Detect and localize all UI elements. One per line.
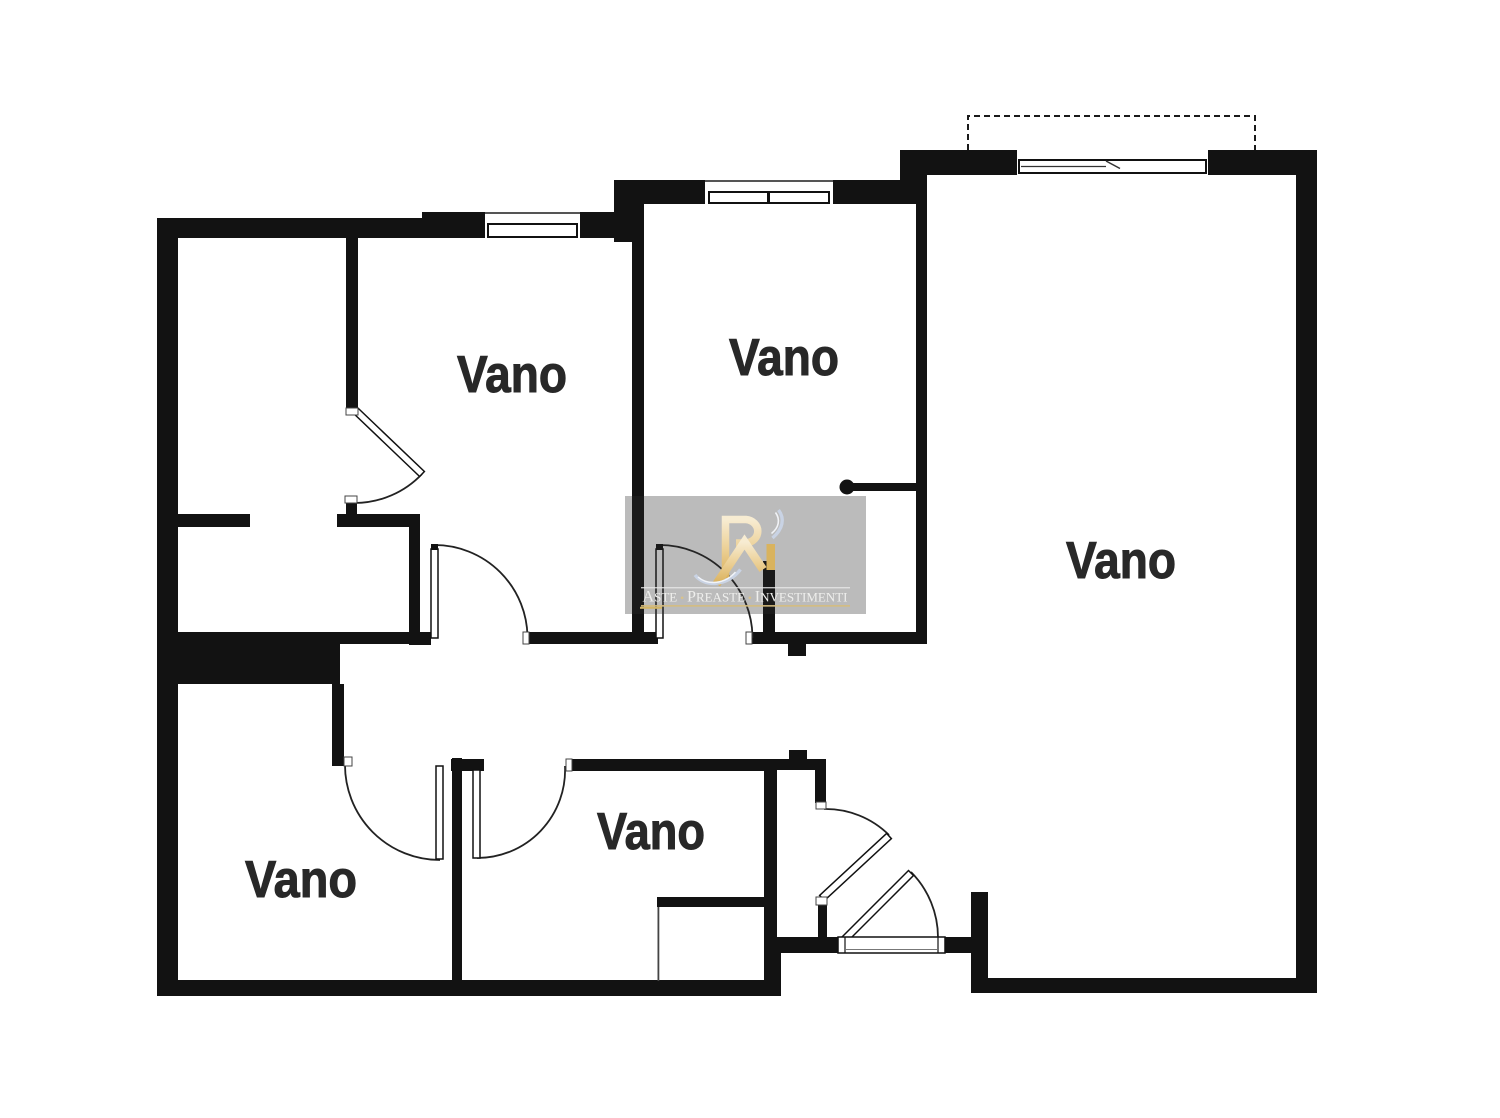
svg-text:Vano: Vano (457, 346, 567, 404)
svg-text:Vano: Vano (597, 803, 705, 861)
svg-text:Vano: Vano (1066, 532, 1176, 590)
svg-text:Vano: Vano (729, 329, 839, 387)
svg-text:Vano: Vano (245, 851, 357, 909)
svg-text:ASTE • PREASTE • INVESTIMENTI: ASTE • PREASTE • INVESTIMENTI (643, 589, 848, 606)
